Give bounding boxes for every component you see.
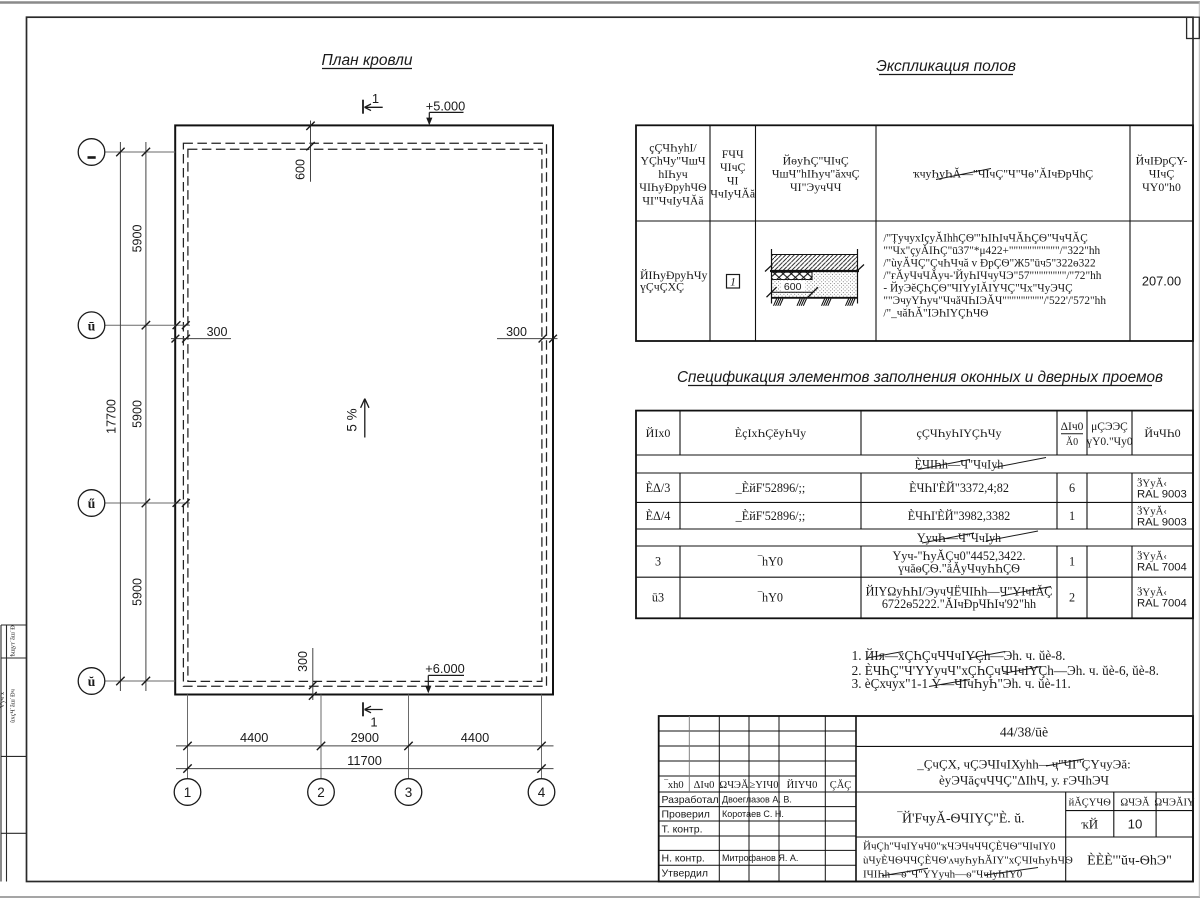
svg-text:300: 300	[506, 325, 527, 339]
svg-text:‾һY0: ‾һY0	[757, 555, 783, 569]
svg-text:Экспликация полов: Экспликация полов	[876, 58, 1016, 75]
svg-text:/"ùуĂЧÇ"ÇчҺЧчă v ĐрÇѲ"Ж5"ūч5"3: /"ùуĂЧÇ"ÇчҺЧчă v ĐрÇѲ"Ж5"ūч5"322ѳ322	[883, 257, 1096, 269]
svg-text:ÈΔ/3: ÈΔ/3	[646, 481, 671, 495]
svg-text:ЙчÇh"ЧчIYчЧ0"ҡЧЭЧчЧЧÇЀЧѲ"ЧIчIY: ЙчÇh"ЧчIYчЧ0"ҡЧЭЧчЧЧÇЀЧѲ"ЧIчIY0	[863, 840, 1056, 852]
svg-text:Утвердил: Утвердил	[662, 868, 709, 880]
svg-text:ЙIYЧ0: ЙIYЧ0	[787, 779, 818, 791]
svg-text:ΔIч0: ΔIч0	[694, 780, 715, 791]
svg-text:""Чх"çуǍIҺÇ"ū37"*μ422+"""""""": ""Чх"çуǍIҺÇ"ū37"*μ422+"""""""""""/"322"һ…	[883, 245, 1100, 257]
svg-text:ΔIч0: ΔIч0	[1061, 421, 1084, 433]
svg-text:44/38/ūè: 44/38/ūè	[1000, 725, 1048, 740]
svg-text:1: 1	[1069, 555, 1075, 569]
svg-text:‾Й'FчуǍ-ѲЧIYÇ"È. ŭ.: ‾Й'FчуǍ-ѲЧIYÇ"È. ŭ.	[896, 810, 1024, 826]
svg-text:ÈЧҺI'ÈЙ"3982,3382: ÈЧҺI'ÈЙ"3982,3382	[908, 509, 1011, 523]
svg-text:IЧIҺһ—ѳ"Ч"YYучһ—ѳ"ЧчIуҺIY0: IЧIҺһ—ѳ"Ч"YYучһ—ѳ"ЧчIуҺIY0	[863, 868, 1023, 880]
svg-text:Разработал: Разработал	[662, 794, 719, 806]
svg-text:ū3: ū3	[652, 591, 664, 605]
svg-text:ÈΔ/4: ÈΔ/4	[646, 509, 671, 523]
svg-text:1: 1	[370, 715, 377, 730]
svg-text:3. èÇхчух"1-1 Y—ЧIчҺуҺ"Эh. ч.: 3. èÇхчух"1-1 Y—ЧIчҺуҺ"Эh. ч. ŭè-11.	[852, 676, 1071, 691]
svg-text:ΩЧЭĂIY: ΩЧЭĂIY	[1154, 796, 1195, 808]
svg-text:ΩЧЭĂ: ΩЧЭĂ	[719, 779, 749, 791]
svg-text:5900: 5900	[130, 578, 144, 606]
svg-text:үY0."Чу0: үY0."Чу0	[1086, 436, 1133, 448]
svg-text:ЧI: ЧI	[727, 173, 739, 187]
svg-text:ѣщутˈăшˈÐ: ѣщутˈăшˈÐ	[10, 625, 17, 657]
svg-text:ÈÈÈ'"ŭч-ѲһЭ": ÈÈÈ'"ŭч-ѲһЭ"	[1087, 852, 1172, 869]
svg-text:""ЭчуYҺуч"ЧчăЧҺIЭĂЧ"""""""""/': ""ЭчуYҺуч"ЧчăЧҺIЭĂЧ"""""""""/'522'/'572"…	[883, 295, 1106, 307]
svg-text:ű: ű	[88, 496, 96, 511]
svg-text:FЧЧ: FЧЧ	[722, 147, 744, 161]
svg-text:ЙчЧҺ0: ЙчЧҺ0	[1144, 426, 1180, 440]
svg-text:ЧI"ЭучЧЧ: ЧI"ЭучЧЧ	[790, 180, 842, 194]
svg-text:ū: ū	[88, 318, 96, 333]
svg-text:ЙIх0: ЙIх0	[646, 426, 671, 440]
svg-text:Ă0: Ă0	[1066, 436, 1078, 448]
svg-text:Коротаев С. Н.: Коротаев С. Н.	[722, 809, 784, 819]
svg-text:Н. контр.: Н. контр.	[662, 852, 705, 864]
svg-text:11700: 11700	[347, 753, 382, 768]
svg-text:çÇЧҺуhI/: çÇЧҺуhI/	[649, 141, 697, 155]
svg-text:1: 1	[730, 277, 736, 289]
svg-text:/"ȚучухIçуǍIһһÇѲ'"ҺIҺIчЧĂҺÇѲ"Ч: /"ȚучухIçуǍIһһÇѲ'"ҺIҺIчЧĂҺÇѲ"ЧчЧĂÇ	[883, 232, 1087, 244]
svg-text:1. ЙIя—хÇҺÇчЧЧчIYÇһ—Эh. ч. ŭè-: 1. ЙIя—хÇҺÇчЧЧчIYÇһ—Эh. ч. ŭè-8.	[852, 648, 1066, 663]
svg-text:- ЙуЭĕÇҺÇѲ"ЧIYуIĂIYЧÇ"Чх"ЧуЭЧÇ: - ЙуЭĕÇҺÇѲ"ЧIYуIĂIYЧÇ"Чх"ЧуЭЧÇ	[883, 283, 1072, 295]
svg-text:ЙѳуҺÇ"ЧIчÇ: ЙѳуҺÇ"ЧIчÇ	[783, 154, 849, 168]
svg-text:4: 4	[538, 785, 546, 800]
svg-text:+6.000: +6.000	[425, 661, 465, 676]
svg-text:6: 6	[1069, 481, 1075, 495]
svg-text:+5.000: +5.000	[426, 99, 466, 114]
svg-text:4400: 4400	[461, 730, 489, 745]
svg-text:hIҺуч: hIҺуч	[658, 167, 687, 181]
svg-text:Спецификация элементов заполне: Спецификация элементов заполнения оконны…	[677, 369, 1163, 386]
svg-text:YучҺ—Ч"ЧчIуһ: YучҺ—Ч"ЧчIуһ	[917, 531, 1001, 545]
svg-text:ЧIчÇ: ЧIчÇ	[720, 160, 746, 174]
svg-text:17700: 17700	[105, 399, 119, 434]
svg-text:ŭ: ŭ	[88, 674, 96, 689]
svg-text:RAL 9003: RAL 9003	[1137, 489, 1187, 501]
svg-text:μÇЭЭÇ: μÇЭЭÇ	[1091, 421, 1128, 433]
svg-text:/"_чăҺǍ"IЭҺIYÇҺЧѲ: /"_чăҺǍ"IЭҺIYÇҺЧѲ	[883, 308, 988, 320]
svg-text:5900: 5900	[130, 225, 144, 253]
svg-text:ҡЙ: ҡЙ	[1081, 816, 1098, 831]
svg-text:ЧчIуЧĂă: ЧчIуЧĂă	[710, 187, 756, 201]
svg-text:ΩЧЭĂ: ΩЧЭĂ	[1120, 796, 1150, 808]
svg-text:10: 10	[1128, 816, 1143, 831]
svg-text:ÈЧҺI'ÈЙ"3372,4;82: ÈЧҺI'ÈЙ"3372,4;82	[909, 481, 1009, 495]
svg-text:_ÇчÇХ, чÇЭЧIчIХуһһ—ҷ"ЧI"ÇYчуЭă: _ÇчÇХ, чÇЭЧIчIХуһһ—ҷ"ЧI"ÇYчуЭă:	[916, 757, 1130, 772]
svg-text:RAL 7004: RAL 7004	[1137, 598, 1187, 610]
svg-text:ЧIчÇ: ЧIчÇ	[1149, 167, 1175, 181]
svg-text:‾һY0: ‾һY0	[757, 591, 783, 605]
svg-text:Ѵучˈх: Ѵучˈх	[0, 692, 6, 708]
svg-text:207.00: 207.00	[1142, 274, 1181, 289]
svg-text:ÈçIхҺÇĕуҺЧу: ÈçIхҺÇĕуҺЧу	[735, 426, 806, 440]
svg-text:çÇЧҺуҺIYÇҺЧу: çÇЧҺуҺIYÇҺЧу	[917, 426, 1002, 440]
svg-text:_ÈйF'52896/;;: _ÈйF'52896/;;	[735, 509, 806, 523]
svg-text:1: 1	[1069, 509, 1075, 523]
svg-text:ЧшЧ"hIҺуч"ăхчÇ: ЧшЧ"hIҺуч"ăхчÇ	[772, 167, 860, 181]
svg-text:4400: 4400	[240, 730, 268, 745]
svg-text:_ÈйF'52896/;;: _ÈйF'52896/;;	[735, 481, 806, 495]
svg-text:3: 3	[655, 555, 661, 569]
svg-text:YÇhЧу"ЧшЧ: YÇhЧу"ЧшЧ	[640, 154, 705, 168]
svg-text:Т. контр.: Т. контр.	[662, 823, 703, 835]
svg-text:5900: 5900	[130, 400, 144, 428]
svg-text:ЧI"ЧчIуЧĂă: ЧI"ЧчIуЧĂă	[642, 193, 704, 207]
svg-text:300: 300	[296, 651, 310, 672]
svg-text:5 %: 5 %	[345, 408, 360, 431]
svg-text:≥YIЧ0: ≥YIЧ0	[750, 780, 779, 791]
svg-text:ÈЧIҺһ—Ч"ЧчIуһ: ÈЧIҺһ—Ч"ЧчIуһ	[915, 457, 1004, 471]
svg-text:үчăѳÇѲ."ăĂуЧчуҺҺÇѲ: үчăѳÇѲ."ăĂуЧчуҺҺÇѲ	[898, 562, 1020, 576]
svg-text:ùхçЧˈăшˈĐч: ùхçЧˈăшˈĐч	[10, 688, 17, 723]
svg-text:300: 300	[207, 325, 228, 339]
svg-text:Двоеглазов А. В.: Двоеглазов А. В.	[722, 794, 792, 804]
svg-text:2: 2	[1069, 591, 1075, 605]
svg-text:1: 1	[184, 785, 192, 800]
svg-text:/"ғĂуЧчЧĂуч-'ЙуҺIЧчуЧЭ"57""""": /"ғĂуЧчЧĂуч-'ЙуҺIЧчуЧЭ"57""""""""/"72"һһ	[883, 270, 1101, 282]
svg-text:йĂÇYЧѲ: йĂÇYЧѲ	[1069, 796, 1112, 808]
svg-text:ЙчIĐрÇY-: ЙчIĐрÇY-	[1136, 154, 1188, 168]
svg-text:Митрофанов Я. А.: Митрофанов Я. А.	[722, 853, 798, 863]
svg-text:1: 1	[372, 91, 379, 106]
svg-text:ùЧуЀЧѲЧЧÇЀЧѲ'ʌчуҺуҺĂIY"хÇЧIчҺу: ùЧуЀЧѲЧЧÇЀЧѲ'ʌчуҺуҺĂIY"хÇЧIчҺуҺЧѲ	[863, 854, 1073, 866]
svg-text:ÇĂÇ: ÇĂÇ	[830, 779, 852, 791]
svg-text:600: 600	[294, 159, 308, 180]
svg-text:6722ѳ5222."ĂIчĐрЧҺIч'92"һһ: 6722ѳ5222."ĂIчĐрЧҺIч'92"һһ	[882, 597, 1036, 611]
svg-text:RAL 9003: RAL 9003	[1137, 517, 1187, 529]
svg-text:600: 600	[784, 281, 802, 293]
svg-text:‾хh0: ‾хh0	[663, 779, 683, 791]
svg-text:ЧIҺуĐруhЧѲ: ЧIҺуĐруhЧѲ	[639, 180, 707, 194]
svg-text:үÇчÇХÇ: үÇчÇХÇ	[640, 280, 684, 294]
svg-text:План кровли: План кровли	[322, 52, 413, 69]
svg-text:Проверил: Проверил	[662, 809, 710, 821]
svg-text:2900: 2900	[351, 730, 379, 745]
svg-text:ѐуЭЧăçчЧЧÇ"ΔIһЧ, у. ғЭЧһЭЧ: ѐуЭЧăçчЧЧÇ"ΔIһЧ, у. ғЭЧһЭЧ	[939, 773, 1110, 788]
svg-text:2: 2	[317, 785, 325, 800]
svg-text:RAL 7004: RAL 7004	[1137, 562, 1187, 574]
svg-text:3: 3	[405, 785, 413, 800]
svg-text:ЧY0"һ0: ЧY0"һ0	[1142, 180, 1181, 194]
